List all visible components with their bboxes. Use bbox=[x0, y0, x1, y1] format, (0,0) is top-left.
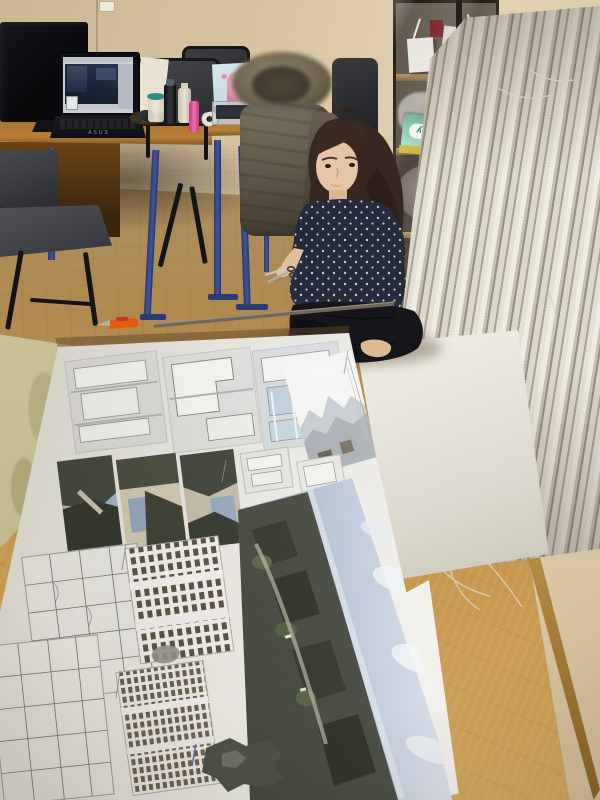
plastic-cup bbox=[148, 97, 164, 122]
floor-plan-2 bbox=[0, 635, 114, 800]
spray-cap bbox=[166, 79, 174, 86]
laptop-side-panel bbox=[118, 64, 133, 109]
photo-scene: ASUS SvetoCopy bbox=[0, 0, 600, 800]
laptop-brand-label: ASUS bbox=[84, 130, 114, 136]
bottle-cap bbox=[181, 83, 188, 89]
spray-can bbox=[164, 84, 176, 124]
render-wall bbox=[67, 66, 87, 92]
cup-lid bbox=[147, 93, 165, 100]
parka-hood-interior bbox=[252, 66, 310, 104]
polka-dot-blouse bbox=[290, 199, 406, 316]
render-ceiling bbox=[96, 68, 116, 80]
building-elevation-2 bbox=[116, 660, 220, 795]
wall-socket bbox=[99, 1, 115, 12]
laptop-app-toolbar bbox=[63, 57, 133, 62]
render-thumbnail bbox=[180, 449, 245, 549]
laptop-keys bbox=[60, 119, 136, 129]
site-plan-2 bbox=[162, 347, 261, 453]
building-elevation-1 bbox=[125, 536, 235, 667]
render-thumbnail bbox=[57, 455, 123, 551]
office-chair-back bbox=[0, 150, 58, 208]
pink-bottle bbox=[189, 101, 199, 132]
desk-leg bbox=[214, 140, 221, 298]
site-plan-1 bbox=[65, 351, 168, 454]
laptop-thumbnail bbox=[66, 96, 78, 110]
render-thumbnail bbox=[116, 453, 187, 552]
architecture-poster bbox=[0, 330, 460, 800]
metal-ruler bbox=[152, 300, 396, 328]
plan-fragment bbox=[240, 447, 293, 493]
